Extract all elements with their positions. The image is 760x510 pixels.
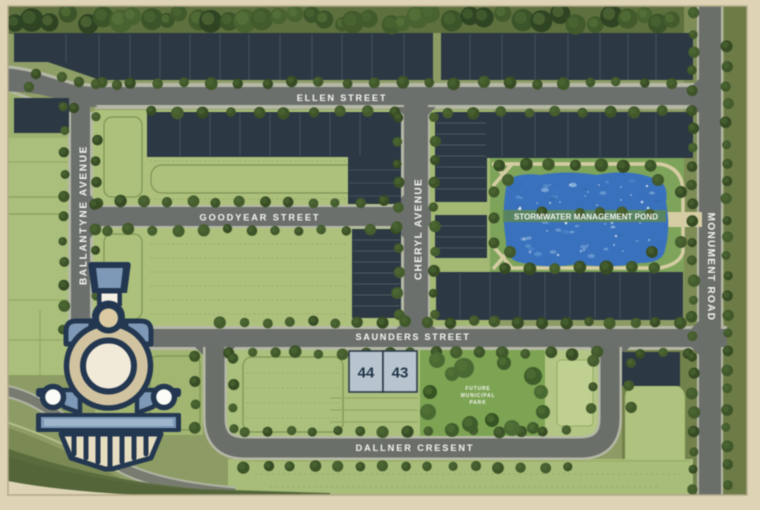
svg-text:PARK: PARK — [470, 400, 487, 406]
svg-text:ELLEN STREET: ELLEN STREET — [297, 93, 388, 103]
svg-text:43: 43 — [392, 365, 409, 382]
svg-text:GOODYEAR STREET: GOODYEAR STREET — [200, 213, 321, 223]
svg-text:BALLANTYNE AVENUE: BALLANTYNE AVENUE — [79, 145, 90, 285]
svg-text:FUTURE: FUTURE — [465, 386, 490, 392]
svg-text:DALLNER CRESENT: DALLNER CRESENT — [356, 443, 475, 453]
svg-text:MUNICIPAL: MUNICIPAL — [461, 393, 496, 399]
svg-text:CHERYL AVENUE: CHERYL AVENUE — [414, 178, 425, 280]
svg-text:SAUNDERS STREET: SAUNDERS STREET — [355, 332, 470, 342]
svg-text:STORMWATER MANAGEMENT POND: STORMWATER MANAGEMENT POND — [514, 213, 658, 222]
svg-text:MONUMENT ROAD: MONUMENT ROAD — [705, 213, 716, 322]
svg-text:44: 44 — [358, 365, 375, 382]
